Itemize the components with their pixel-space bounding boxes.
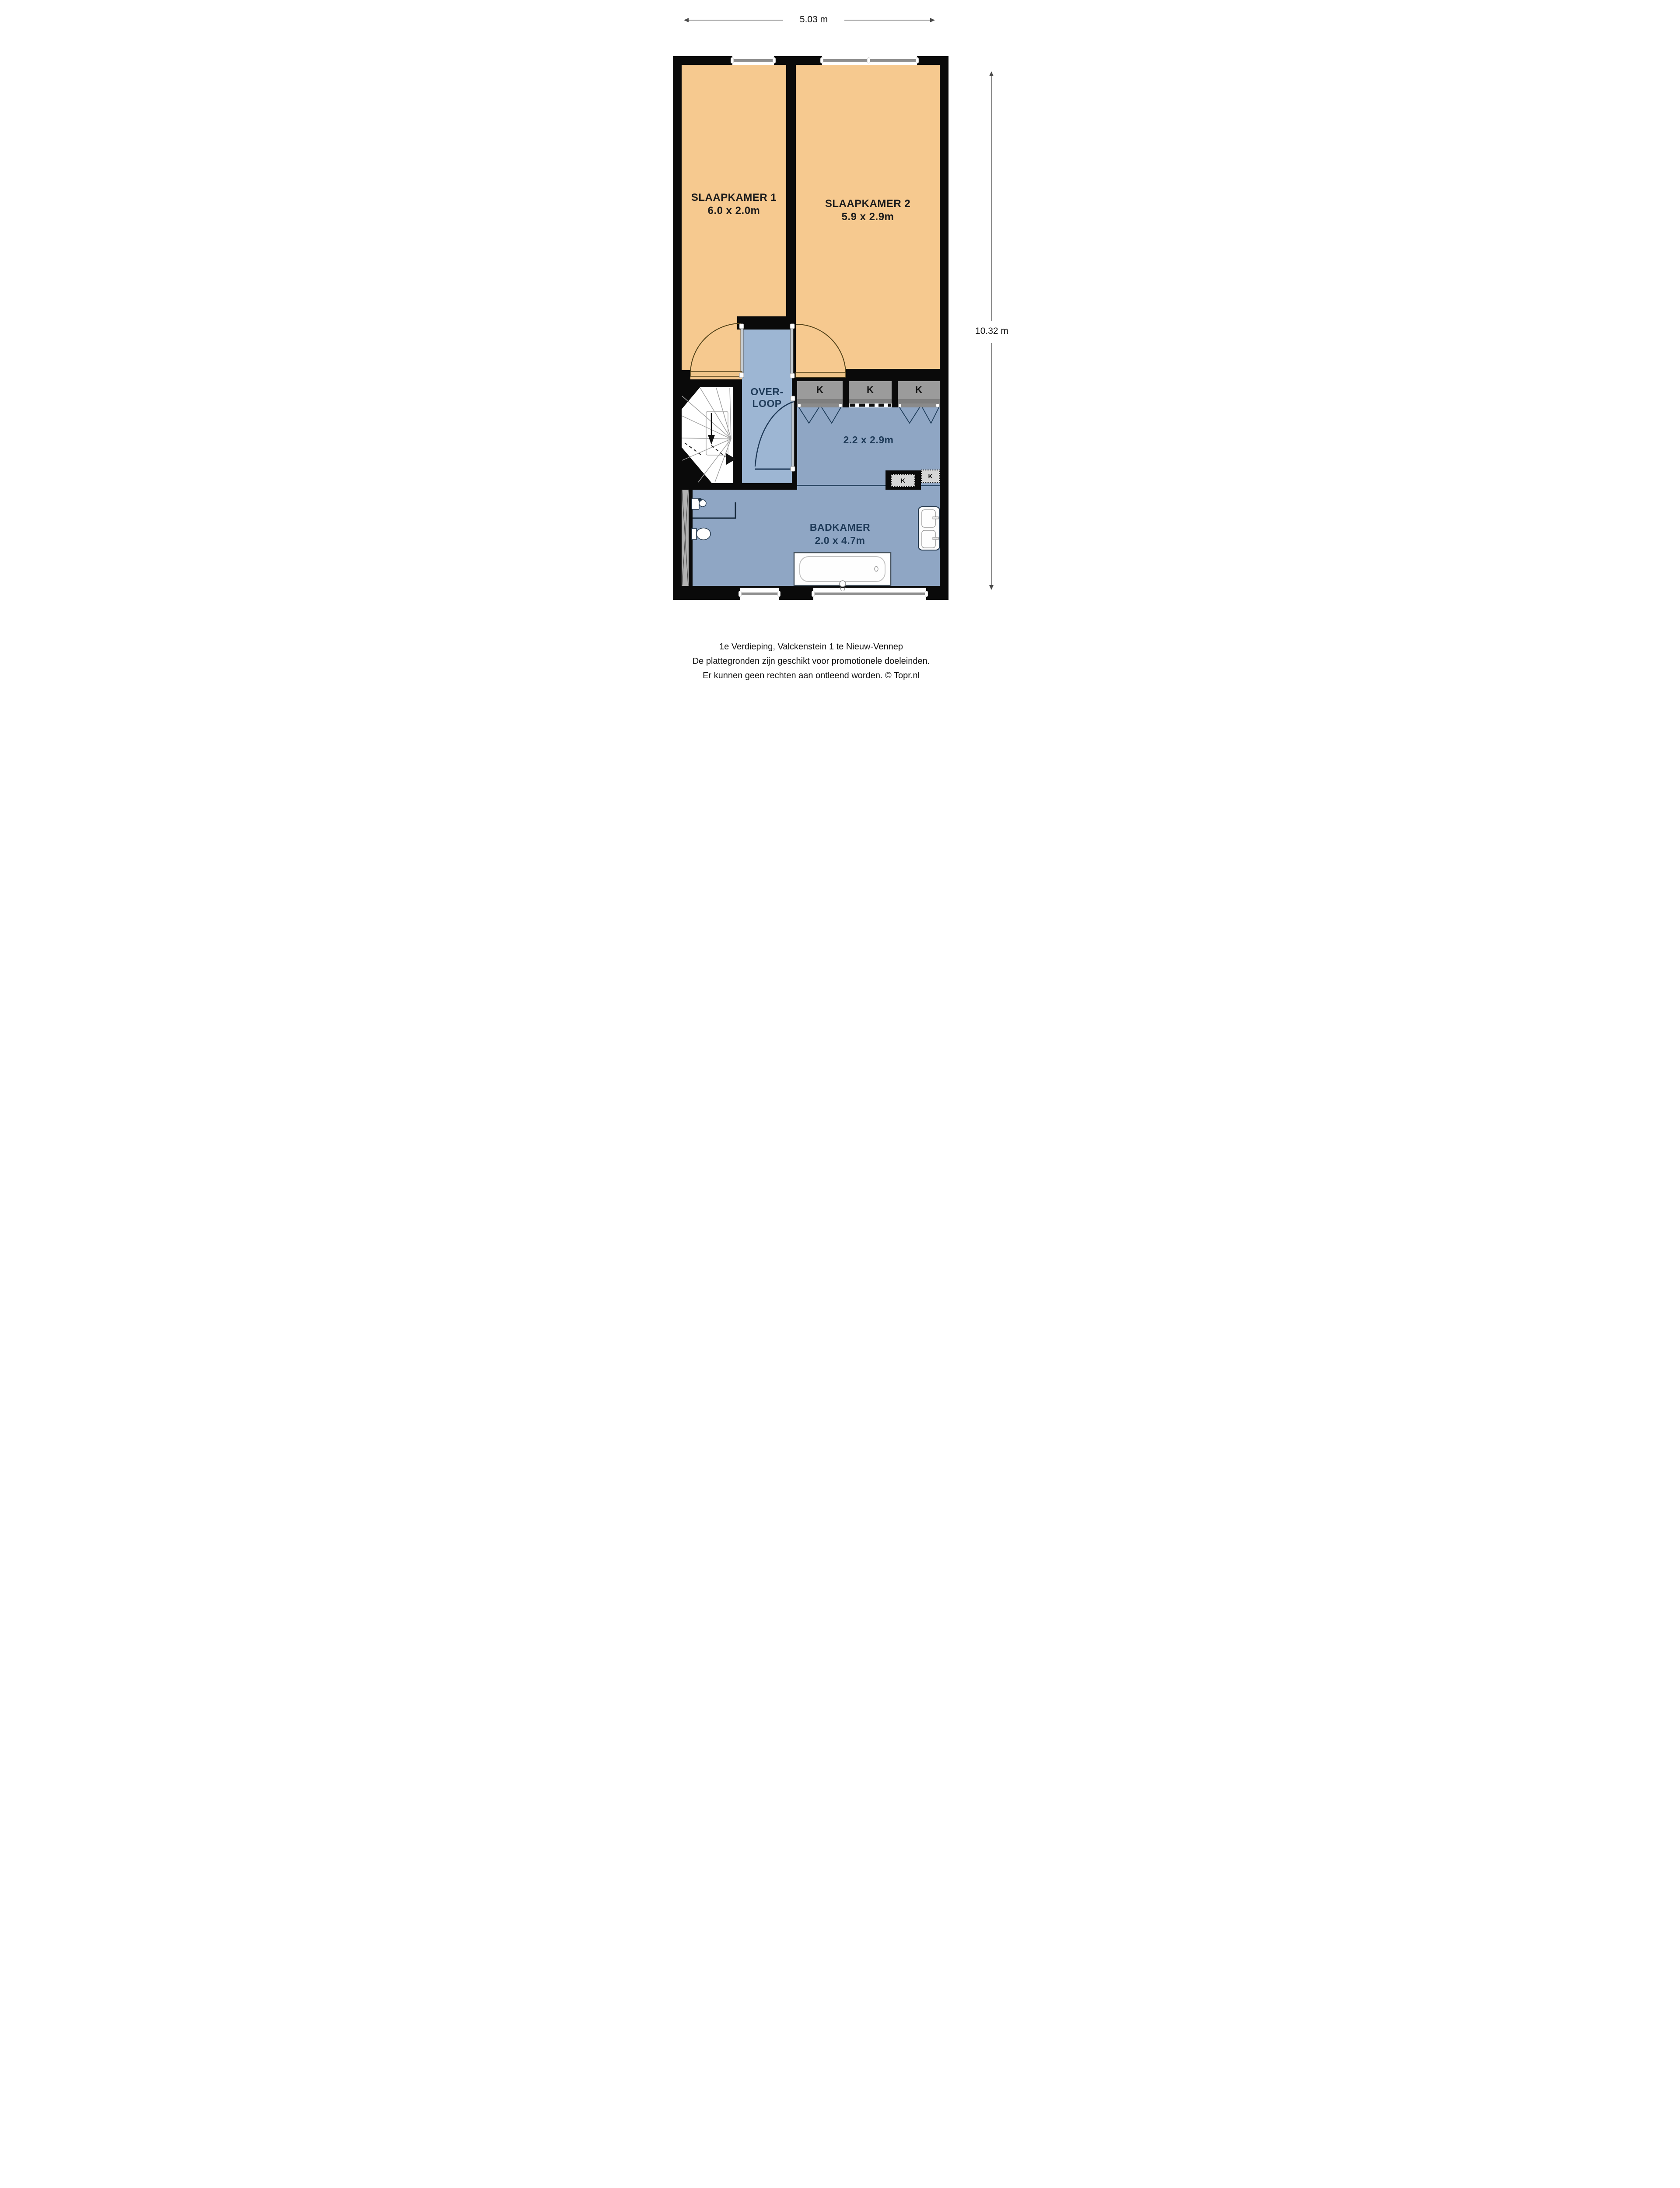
closet-k-2-label: K bbox=[867, 384, 874, 395]
closet-k-small-1-label: K bbox=[901, 477, 905, 484]
dimension-top-line-left bbox=[685, 20, 789, 21]
closet-1-doors bbox=[797, 403, 843, 407]
dimension-width-label: 5.03 m bbox=[783, 14, 844, 25]
closet-3-doors bbox=[898, 403, 940, 407]
closet-k-small-1: K bbox=[891, 474, 915, 487]
label-overloop-line1: OVER- bbox=[742, 386, 792, 398]
dimension-right-line-bottom bbox=[991, 343, 992, 588]
label-slaapkamer-1-size: 6.0 x 2.0m bbox=[682, 205, 786, 217]
wall-under-stairs bbox=[682, 483, 797, 490]
closet-k-3: K bbox=[898, 381, 940, 403]
dimension-top-line-right bbox=[836, 20, 934, 21]
dimension-right-line-top bbox=[991, 73, 992, 321]
arrow-up-icon bbox=[989, 71, 994, 76]
closet-k-1-label: K bbox=[816, 384, 823, 395]
door-opening-slaapkamer-1 bbox=[690, 370, 742, 379]
arrow-right-icon bbox=[930, 18, 935, 22]
caption-line-3: Er kunnen geen rechten aan ontleend word… bbox=[673, 669, 949, 683]
label-badkamer-size: 2.0 x 4.7m bbox=[748, 535, 932, 547]
label-slaapkamer-1: SLAAPKAMER 1 bbox=[682, 192, 786, 204]
closet-k-2: K bbox=[849, 381, 892, 403]
label-slaapkamer-2-size: 5.9 x 2.9m bbox=[796, 211, 940, 223]
label-badkamer: BADKAMER bbox=[748, 522, 932, 533]
window-bottom-1 bbox=[740, 588, 779, 600]
caption-block: 1e Verdieping, Valckenstein 1 te Nieuw-V… bbox=[673, 640, 949, 683]
label-overloop: OVER- LOOP bbox=[742, 386, 792, 410]
dimension-height-label: 10.32 m bbox=[964, 326, 1020, 337]
label-hal-size: 2.2 x 2.9m bbox=[797, 434, 940, 446]
caption-line-2: De plattegronden zijn geschikt voor prom… bbox=[673, 654, 949, 669]
wall-partition-bedrooms bbox=[786, 65, 796, 330]
label-overloop-line2: LOOP bbox=[742, 398, 792, 410]
arrow-down-icon bbox=[989, 585, 994, 590]
closet-2-sliding-door bbox=[849, 403, 892, 407]
closet-k-small-2-label: K bbox=[928, 473, 932, 480]
window-top-2 bbox=[822, 56, 917, 65]
wall-corridor-top bbox=[737, 316, 796, 330]
closet-k-small-2: K bbox=[921, 470, 940, 483]
door-opening-slaapkamer-2 bbox=[796, 369, 846, 376]
floor-plan-page: 5.03 m 10.32 m K K K K K bbox=[595, 0, 1085, 693]
window-top-1 bbox=[732, 56, 774, 65]
arrow-left-icon bbox=[684, 18, 689, 22]
window-bottom-2 bbox=[813, 588, 926, 600]
closet-k-1: K bbox=[797, 381, 843, 403]
closet-k-3-label: K bbox=[915, 384, 922, 395]
label-slaapkamer-2: SLAAPKAMER 2 bbox=[796, 198, 940, 210]
shaft-hatched bbox=[682, 490, 689, 586]
caption-line-1: 1e Verdieping, Valckenstein 1 te Nieuw-V… bbox=[673, 640, 949, 654]
